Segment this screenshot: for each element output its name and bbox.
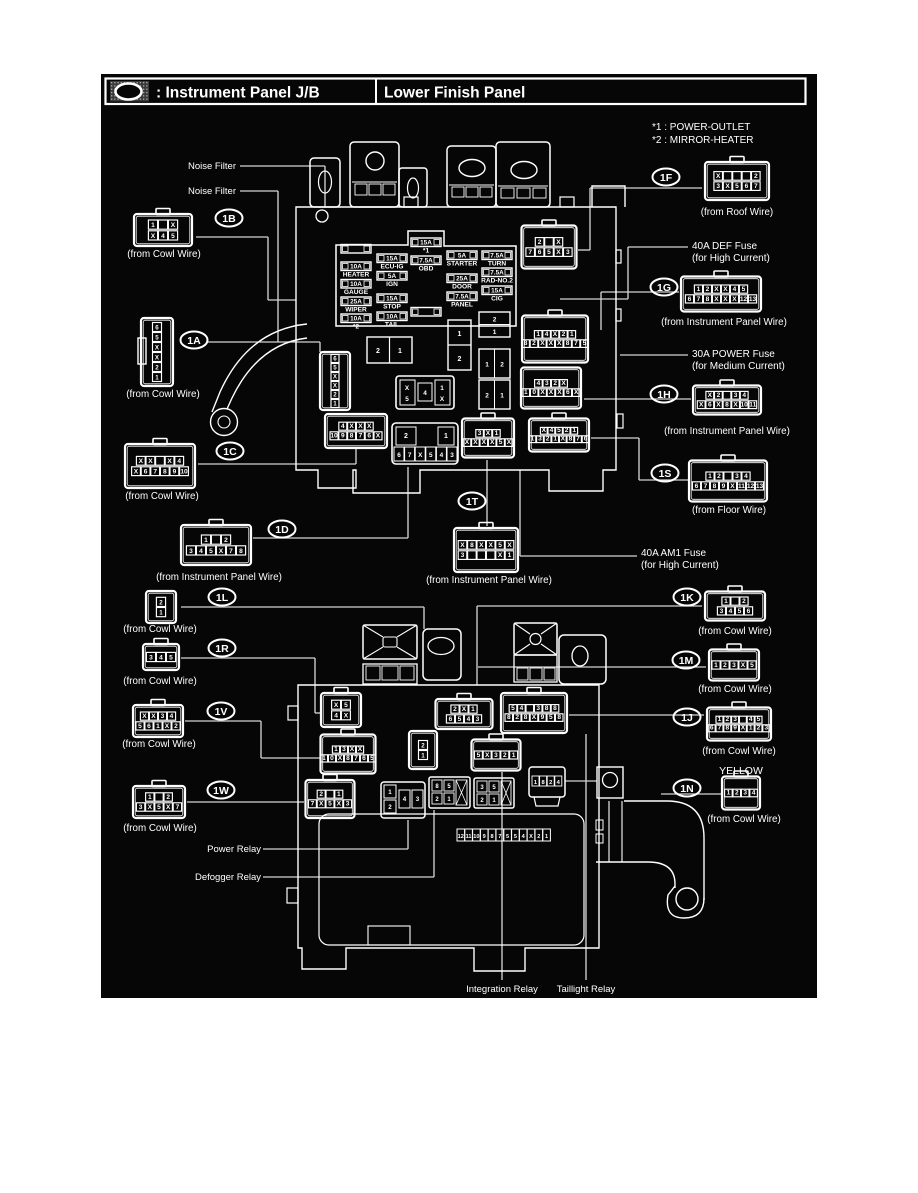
svg-text:X: X — [166, 804, 171, 811]
svg-text:6: 6 — [155, 324, 159, 331]
svg-text:2: 2 — [532, 340, 536, 347]
svg-text:X: X — [549, 389, 554, 396]
svg-text:8: 8 — [557, 714, 561, 721]
svg-text:5: 5 — [429, 452, 433, 459]
svg-text:X: X — [540, 389, 545, 396]
svg-text:ECU-IG: ECU-IG — [380, 264, 403, 271]
svg-text:(from Cowl Wire): (from Cowl Wire) — [123, 624, 196, 635]
svg-text:7: 7 — [176, 804, 180, 811]
svg-text:2: 2 — [404, 433, 408, 440]
svg-text:2: 2 — [159, 599, 163, 606]
svg-text:X: X — [556, 249, 561, 256]
svg-text:8: 8 — [470, 542, 474, 549]
svg-text:6: 6 — [710, 725, 714, 732]
svg-text:X: X — [498, 552, 503, 559]
svg-text:2: 2 — [458, 356, 462, 363]
svg-text:7.5A: 7.5A — [490, 270, 504, 277]
svg-text:6: 6 — [695, 483, 699, 490]
svg-text:6: 6 — [538, 249, 542, 256]
svg-text:1N: 1N — [680, 783, 693, 795]
svg-text:9: 9 — [722, 483, 726, 490]
svg-text:5: 5 — [742, 286, 746, 293]
svg-text:5A: 5A — [458, 253, 467, 260]
svg-text:5: 5 — [735, 183, 739, 190]
svg-text:40A AM1 Fuse: 40A AM1 Fuse — [641, 548, 706, 559]
svg-text:X: X — [148, 804, 153, 811]
svg-text:5A: 5A — [388, 273, 397, 280]
svg-text:X: X — [337, 801, 342, 808]
svg-text:1: 1 — [159, 610, 163, 617]
svg-text:5: 5 — [171, 233, 175, 240]
svg-text:2: 2 — [376, 348, 380, 355]
svg-text:(for High Current): (for High Current) — [692, 253, 770, 264]
svg-text:1: 1 — [151, 222, 155, 229]
svg-text:X: X — [171, 222, 176, 229]
svg-text:9: 9 — [483, 834, 486, 840]
svg-text:1: 1 — [718, 716, 722, 723]
svg-text:6: 6 — [367, 433, 371, 440]
svg-text:7: 7 — [574, 340, 578, 347]
svg-text:15A: 15A — [491, 288, 503, 295]
svg-text:2: 2 — [742, 598, 746, 605]
svg-text:1J: 1J — [681, 712, 693, 724]
svg-text:X: X — [165, 723, 170, 730]
svg-text:10: 10 — [741, 401, 749, 408]
svg-text:X: X — [486, 430, 491, 437]
svg-text:: Instrument Panel J/B: : Instrument Panel J/B — [156, 85, 320, 102]
svg-text:2: 2 — [717, 473, 721, 480]
svg-text:X: X — [334, 702, 339, 709]
svg-text:DOOR: DOOR — [452, 284, 472, 291]
svg-text:3: 3 — [478, 430, 482, 437]
svg-text:5: 5 — [138, 723, 142, 730]
svg-text:(from Cowl Wire): (from Cowl Wire) — [698, 626, 771, 637]
svg-text:4: 4 — [334, 713, 338, 720]
svg-text:3: 3 — [733, 716, 737, 723]
svg-text:8: 8 — [524, 714, 528, 721]
svg-text:X: X — [557, 389, 562, 396]
svg-text:X: X — [167, 458, 172, 465]
svg-text:PANEL: PANEL — [451, 302, 473, 309]
svg-text:5: 5 — [405, 396, 409, 403]
svg-text:10: 10 — [180, 468, 188, 475]
svg-text:(for Medium Current): (for Medium Current) — [692, 361, 785, 372]
svg-text:4: 4 — [199, 548, 203, 555]
svg-text:3: 3 — [494, 752, 498, 759]
svg-text:25A: 25A — [456, 276, 468, 283]
svg-text:X: X — [465, 439, 470, 446]
svg-text:1B: 1B — [222, 213, 236, 225]
svg-text:Defogger Relay: Defogger Relay — [195, 872, 261, 883]
svg-text:8: 8 — [569, 435, 573, 442]
svg-text:2: 2 — [537, 834, 540, 840]
svg-text:1: 1 — [398, 348, 402, 355]
svg-text:X: X — [553, 331, 558, 338]
svg-text:3: 3 — [716, 183, 720, 190]
svg-text:7: 7 — [704, 483, 708, 490]
svg-text:4: 4 — [403, 796, 407, 803]
svg-text:X: X — [561, 380, 566, 387]
svg-text:3: 3 — [545, 380, 549, 387]
svg-text:RAD-NO.2: RAD-NO.2 — [481, 278, 513, 285]
svg-text:X: X — [699, 401, 704, 408]
svg-text:1: 1 — [495, 430, 499, 437]
svg-text:40A DEF Fuse: 40A DEF Fuse — [692, 241, 757, 252]
svg-text:X: X — [349, 423, 354, 430]
svg-text:8: 8 — [163, 468, 167, 475]
svg-text:4: 4 — [749, 716, 753, 723]
svg-text:X: X — [733, 401, 738, 408]
svg-text:7: 7 — [229, 548, 233, 555]
svg-text:6: 6 — [708, 401, 712, 408]
svg-text:1K: 1K — [680, 592, 694, 604]
svg-text:X: X — [473, 439, 478, 446]
svg-text:1: 1 — [493, 329, 497, 336]
svg-text:X: X — [460, 542, 465, 549]
svg-text:X: X — [338, 755, 343, 762]
svg-text:3: 3 — [734, 392, 738, 399]
svg-text:8: 8 — [553, 705, 557, 712]
svg-text:8: 8 — [725, 401, 729, 408]
svg-text:3: 3 — [764, 725, 768, 732]
svg-text:4: 4 — [520, 705, 524, 712]
svg-text:9: 9 — [541, 714, 545, 721]
svg-text:X: X — [418, 452, 423, 459]
svg-text:7: 7 — [498, 834, 501, 840]
svg-text:X: X — [540, 340, 545, 347]
svg-text:11: 11 — [738, 483, 745, 490]
svg-text:5: 5 — [549, 714, 553, 721]
svg-text:X: X — [139, 458, 144, 465]
svg-text:4: 4 — [159, 654, 163, 661]
svg-text:5: 5 — [155, 334, 159, 341]
svg-text:2: 2 — [333, 391, 337, 398]
svg-text:8: 8 — [725, 725, 729, 732]
svg-text:2: 2 — [174, 723, 178, 730]
svg-text:2: 2 — [453, 706, 457, 713]
svg-text:2: 2 — [515, 714, 519, 721]
svg-text:1W: 1W — [213, 785, 229, 797]
svg-text:3: 3 — [536, 705, 540, 712]
svg-text:25A: 25A — [350, 299, 362, 306]
svg-text:1: 1 — [148, 794, 152, 801]
svg-text:3: 3 — [743, 790, 747, 797]
svg-text:1: 1 — [333, 400, 337, 407]
svg-text:4: 4 — [550, 427, 554, 434]
svg-text:11: 11 — [749, 401, 756, 408]
svg-text:2: 2 — [493, 317, 497, 324]
svg-text:9: 9 — [733, 725, 737, 732]
svg-text:5: 5 — [547, 249, 551, 256]
svg-text:7: 7 — [528, 249, 532, 256]
svg-text:8: 8 — [346, 755, 350, 762]
svg-text:X: X — [358, 423, 363, 430]
svg-text:0: 0 — [330, 755, 334, 762]
svg-text:5: 5 — [344, 702, 348, 709]
svg-text:3: 3 — [461, 552, 465, 559]
svg-text:3: 3 — [342, 746, 346, 753]
svg-text:X: X — [549, 340, 554, 347]
svg-text:2: 2 — [421, 742, 425, 749]
svg-text:2: 2 — [735, 790, 739, 797]
svg-text:2: 2 — [503, 752, 507, 759]
svg-text:*2 : MIRROR-HEATER: *2 : MIRROR-HEATER — [652, 135, 754, 146]
svg-text:5: 5 — [370, 755, 374, 762]
svg-text:(from Cowl Wire): (from Cowl Wire) — [125, 491, 198, 502]
svg-text:1: 1 — [512, 752, 516, 759]
svg-text:(from Cowl Wire): (from Cowl Wire) — [702, 746, 775, 757]
svg-text:3: 3 — [149, 654, 153, 661]
svg-text:4: 4 — [545, 331, 549, 338]
svg-text:7: 7 — [354, 755, 358, 762]
svg-text:2: 2 — [717, 392, 721, 399]
svg-text:5: 5 — [757, 716, 761, 723]
svg-text:(from Instrument Panel Wire): (from Instrument Panel Wire) — [426, 575, 552, 586]
svg-text:X: X — [344, 713, 349, 720]
svg-text:1: 1 — [440, 385, 444, 392]
svg-text:8: 8 — [713, 483, 717, 490]
svg-text:13: 13 — [749, 296, 757, 303]
svg-text:1H: 1H — [657, 389, 670, 401]
svg-text:X: X — [708, 392, 713, 399]
svg-text:10A: 10A — [386, 314, 398, 321]
svg-text:X: X — [488, 542, 493, 549]
svg-text:7: 7 — [359, 433, 363, 440]
svg-text:1A: 1A — [187, 335, 201, 347]
svg-text:3: 3 — [139, 804, 143, 811]
svg-text:*1: *1 — [423, 248, 430, 255]
svg-text:(from Cowl Wire): (from Cowl Wire) — [123, 676, 196, 687]
svg-text:15A: 15A — [386, 256, 398, 263]
svg-text:X: X — [723, 286, 728, 293]
svg-text:7.5A: 7.5A — [419, 258, 433, 265]
svg-text:(from Cowl Wire): (from Cowl Wire) — [123, 823, 196, 834]
svg-text:4: 4 — [744, 473, 748, 480]
svg-text:10: 10 — [330, 433, 338, 440]
svg-text:2: 2 — [538, 239, 542, 246]
svg-text:X: X — [529, 834, 533, 840]
svg-text:2: 2 — [155, 364, 159, 371]
svg-text:3: 3 — [450, 452, 454, 459]
svg-text:5: 5 — [499, 439, 503, 446]
svg-text:X: X — [148, 458, 153, 465]
svg-text:7.5A: 7.5A — [455, 294, 469, 301]
svg-text:3: 3 — [476, 716, 480, 723]
svg-text:0: 0 — [532, 389, 536, 396]
svg-text:5: 5 — [750, 662, 754, 669]
svg-text:4: 4 — [161, 233, 165, 240]
svg-text:HEATER: HEATER — [343, 272, 370, 279]
svg-text:1: 1 — [156, 723, 160, 730]
svg-text:(from Cowl Wire): (from Cowl Wire) — [707, 814, 780, 825]
svg-text:X: X — [485, 752, 490, 759]
svg-text:1G: 1G — [657, 282, 671, 294]
svg-text:X: X — [557, 340, 562, 347]
svg-text:1: 1 — [724, 598, 728, 605]
svg-text:1M: 1M — [679, 655, 694, 667]
svg-text:6: 6 — [584, 435, 588, 442]
svg-text:1: 1 — [322, 755, 326, 762]
svg-text:9: 9 — [341, 433, 345, 440]
svg-text:8: 8 — [706, 296, 710, 303]
svg-text:*1 : POWER-OUTLET: *1 : POWER-OUTLET — [652, 122, 750, 133]
svg-text:8: 8 — [566, 340, 570, 347]
svg-text:2: 2 — [224, 537, 228, 544]
svg-text:1: 1 — [749, 725, 753, 732]
svg-text:6: 6 — [333, 355, 337, 362]
svg-text:5: 5 — [511, 705, 515, 712]
svg-text:10A: 10A — [350, 281, 362, 288]
svg-text:8: 8 — [524, 340, 528, 347]
svg-text:10A: 10A — [350, 264, 362, 271]
svg-text:1: 1 — [204, 537, 208, 544]
svg-text:3: 3 — [735, 473, 739, 480]
svg-text:1: 1 — [714, 662, 718, 669]
svg-text:7: 7 — [697, 296, 701, 303]
svg-text:6: 6 — [688, 296, 692, 303]
svg-text:OBD: OBD — [419, 266, 434, 273]
svg-text:13: 13 — [756, 483, 764, 490]
svg-text:X: X — [219, 548, 224, 555]
svg-text:10: 10 — [473, 834, 479, 840]
svg-text:1: 1 — [508, 552, 512, 559]
svg-text:9: 9 — [173, 468, 177, 475]
svg-text:(from Cowl Wire): (from Cowl Wire) — [122, 739, 195, 750]
svg-text:12: 12 — [747, 483, 755, 490]
svg-text:7: 7 — [408, 452, 412, 459]
svg-text:Power Relay: Power Relay — [207, 844, 261, 855]
svg-text:2: 2 — [565, 427, 569, 434]
svg-text:3: 3 — [720, 608, 724, 615]
svg-text:TURN: TURN — [488, 261, 507, 268]
svg-text:X: X — [730, 483, 735, 490]
svg-text:2: 2 — [485, 393, 489, 400]
svg-text:8: 8 — [239, 548, 243, 555]
svg-text:5: 5 — [169, 654, 173, 661]
svg-text:X: X — [714, 296, 719, 303]
svg-text:2: 2 — [166, 794, 170, 801]
svg-text:X: X — [723, 296, 728, 303]
svg-text:X: X — [440, 396, 445, 403]
svg-text:X: X — [151, 233, 156, 240]
svg-text:1: 1 — [421, 752, 425, 759]
svg-text:6: 6 — [147, 723, 151, 730]
svg-text:IGN: IGN — [386, 281, 398, 288]
svg-text:3: 3 — [161, 713, 165, 720]
svg-text:X: X — [405, 385, 410, 392]
svg-text:15A: 15A — [386, 296, 398, 303]
svg-text:8: 8 — [545, 705, 549, 712]
svg-text:1: 1 — [570, 331, 574, 338]
svg-text:1: 1 — [458, 331, 462, 338]
svg-text:3: 3 — [732, 662, 736, 669]
svg-text:1: 1 — [155, 374, 159, 381]
svg-text:2: 2 — [388, 804, 392, 811]
svg-text:(from Cowl Wire): (from Cowl Wire) — [127, 249, 200, 260]
svg-text:X: X — [376, 433, 381, 440]
svg-text:(from Instrument Panel Wire): (from Instrument Panel Wire) — [661, 317, 787, 328]
svg-text:1: 1 — [485, 362, 489, 369]
svg-text:1V: 1V — [215, 706, 228, 718]
svg-text:4: 4 — [537, 380, 541, 387]
svg-text:5: 5 — [328, 801, 332, 808]
svg-text:Integration Relay: Integration Relay — [466, 984, 538, 995]
svg-text:X: X — [142, 713, 147, 720]
svg-text:Noise Filter: Noise Filter — [188, 161, 236, 172]
svg-text:X: X — [561, 435, 566, 442]
svg-text:1: 1 — [500, 393, 504, 400]
svg-text:(from Cowl Wire): (from Cowl Wire) — [126, 389, 199, 400]
svg-text:1T: 1T — [466, 496, 479, 508]
svg-text:X: X — [134, 468, 139, 475]
svg-text:1: 1 — [337, 791, 341, 798]
svg-text:6: 6 — [144, 468, 148, 475]
svg-text:2: 2 — [500, 362, 504, 369]
svg-text:X: X — [482, 439, 487, 446]
svg-text:5: 5 — [557, 427, 561, 434]
svg-text:2: 2 — [546, 435, 550, 442]
svg-text:5: 5 — [583, 340, 587, 347]
svg-text:X: X — [490, 439, 495, 446]
svg-text:STOP: STOP — [383, 304, 401, 311]
svg-text:Noise Filter: Noise Filter — [188, 186, 236, 197]
svg-text:X: X — [507, 542, 512, 549]
svg-text:(from Roof Wire): (from Roof Wire) — [701, 207, 773, 218]
svg-text:7: 7 — [718, 725, 722, 732]
svg-text:8: 8 — [350, 433, 354, 440]
svg-text:1: 1 — [536, 331, 540, 338]
svg-text:5: 5 — [514, 834, 517, 840]
svg-text:2: 2 — [706, 286, 710, 293]
svg-text:X: X — [319, 801, 324, 808]
svg-text:6: 6 — [362, 755, 366, 762]
svg-text:*2: *2 — [353, 324, 360, 331]
svg-text:10A: 10A — [350, 316, 362, 323]
svg-text:1: 1 — [545, 834, 548, 840]
svg-text:4: 4 — [177, 458, 181, 465]
svg-text:12: 12 — [740, 296, 748, 303]
svg-text:7: 7 — [754, 183, 758, 190]
svg-text:4: 4 — [733, 286, 737, 293]
svg-text:CIG: CIG — [491, 296, 503, 303]
svg-text:2: 2 — [562, 331, 566, 338]
svg-text:30A POWER Fuse: 30A POWER Fuse — [692, 349, 775, 360]
svg-text:X: X — [350, 746, 355, 753]
svg-text:5: 5 — [477, 752, 481, 759]
svg-text:X: X — [716, 401, 721, 408]
svg-text:(from Instrument Panel Wire): (from Instrument Panel Wire) — [664, 426, 790, 437]
svg-text:1C: 1C — [223, 446, 237, 458]
svg-text:WIPER: WIPER — [345, 307, 367, 314]
svg-text:X: X — [507, 439, 512, 446]
svg-text:3: 3 — [538, 435, 542, 442]
svg-text:7: 7 — [311, 801, 315, 808]
svg-text:1: 1 — [388, 789, 392, 796]
svg-text:6: 6 — [745, 183, 749, 190]
svg-text:X: X — [532, 714, 537, 721]
svg-text:5: 5 — [333, 364, 337, 371]
svg-text:7: 7 — [576, 435, 580, 442]
svg-text:6: 6 — [449, 716, 453, 723]
svg-text:X: X — [716, 173, 721, 180]
svg-text:2: 2 — [754, 173, 758, 180]
svg-text:X: X — [732, 296, 737, 303]
svg-text:Lower Finish Panel: Lower Finish Panel — [384, 85, 525, 102]
svg-text:1D: 1D — [275, 524, 289, 536]
svg-text:1: 1 — [697, 286, 701, 293]
svg-text:5: 5 — [498, 542, 502, 549]
svg-text:7: 7 — [153, 468, 157, 475]
